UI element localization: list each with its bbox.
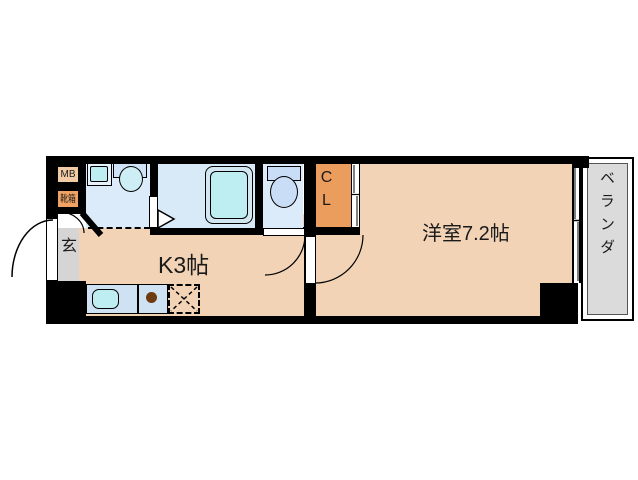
washroom-boundary-dashed (88, 227, 150, 229)
floor-plan: MB 靴箱 玄 K3帖 洋室7.2帖 CL ベランダ (0, 0, 638, 480)
entrance-label: 玄 (60, 239, 78, 255)
kitchen-label: K3帖 (158, 254, 209, 277)
closet-sliding-door (351, 164, 360, 227)
bottom-right-pillar (540, 283, 578, 324)
counter-divider (137, 284, 139, 314)
kitchen-sink (92, 289, 119, 309)
western-room-label: 洋室7.2帖 (422, 224, 510, 244)
meter-box-label: MB (57, 170, 79, 180)
under-closet-wall (303, 227, 360, 235)
stove-burner (146, 292, 157, 303)
western-room-door-leaf (305, 236, 316, 284)
toilet-bowl (270, 176, 298, 208)
bathtub-inner (210, 171, 248, 219)
wash-basin (119, 166, 143, 192)
closet-label: CL (318, 169, 334, 215)
bathroom-toilet-wall (255, 156, 263, 235)
top-right-corner-pillar (573, 156, 589, 168)
toilet-door-leaf (263, 228, 305, 236)
sliding-window (572, 164, 581, 283)
washroom-bathroom-wall (150, 156, 158, 198)
veranda-label: ベランダ (599, 170, 614, 262)
entrance-door-leaf (46, 218, 58, 281)
fridge-space (168, 284, 200, 314)
under-bath-wall (150, 228, 265, 235)
shoe-box-label: 靴箱 (57, 195, 78, 205)
washing-machine-tub (90, 166, 108, 182)
bathroom-door-leaf (149, 196, 158, 228)
